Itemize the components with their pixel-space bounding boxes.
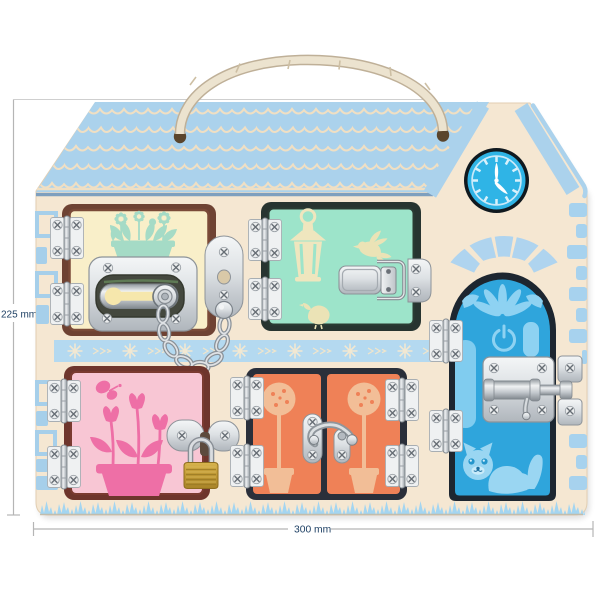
svg-text:300 mm: 300 mm xyxy=(294,525,331,536)
svg-text:225 mm: 225 mm xyxy=(1,310,37,321)
